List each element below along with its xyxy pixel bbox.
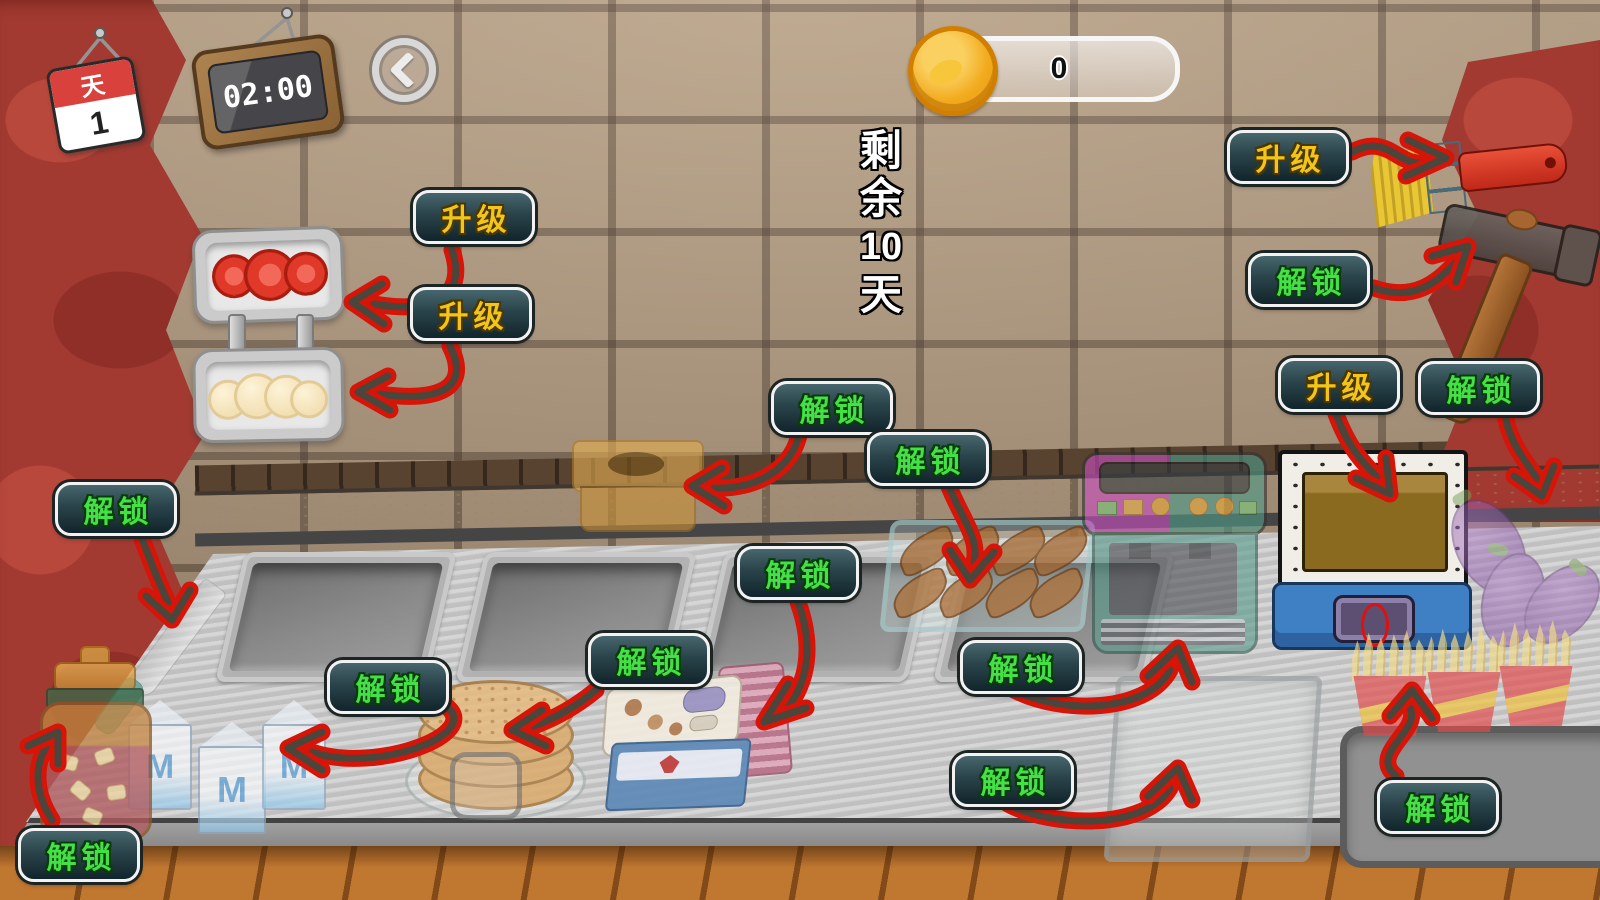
upgrade-tomato-tray-button[interactable]: 升级: [413, 190, 535, 244]
fries-carton: [1426, 626, 1502, 734]
tomato-tray: [191, 225, 345, 324]
unlock-hammer-button[interactable]: 解锁: [1248, 253, 1370, 307]
milk-carton: M: [262, 700, 326, 810]
fries-carton: [1352, 630, 1428, 738]
unlock-chicken-button[interactable]: 解锁: [867, 432, 989, 486]
upgrade-paintbrush-button[interactable]: 升级: [1227, 130, 1349, 184]
unlock-milk-button[interactable]: 解锁: [327, 660, 449, 714]
glass-bin: [1103, 676, 1322, 862]
unlock-fries-button[interactable]: 解锁: [1377, 780, 1499, 834]
milk-logo: M: [280, 748, 308, 787]
back-button[interactable]: [372, 38, 436, 102]
days-remaining-char: 余: [860, 176, 902, 222]
fryer-oil: [1302, 472, 1448, 572]
coin-icon: [908, 26, 998, 116]
fried-chicken-tray: [879, 520, 1096, 632]
unlock-pancakes-button[interactable]: 解锁: [588, 633, 710, 687]
day-calendar: 天 1: [45, 55, 147, 155]
fries-carton: [1498, 620, 1574, 728]
timer-value: 02:00: [207, 49, 330, 134]
days-remaining-number: 10: [860, 224, 902, 270]
game-screen: M M M: [0, 0, 1600, 900]
butter-box: [572, 440, 704, 532]
unlock-eggplant-button[interactable]: 解锁: [1418, 361, 1540, 415]
days-remaining-char: 天: [860, 272, 902, 318]
unlock-glass-bin-button[interactable]: 解锁: [952, 753, 1074, 807]
milk-logo: M: [217, 769, 247, 811]
days-remaining-char: 剩: [860, 128, 902, 174]
unlock-steamer-box-button[interactable]: 解锁: [737, 546, 859, 600]
sauce-jar: [36, 646, 152, 838]
upgrade-fryer-button[interactable]: 升级: [1278, 358, 1400, 412]
coffee-machine: [1082, 452, 1267, 650]
upgrade-bun-tray-button[interactable]: 升级: [410, 287, 532, 341]
milk-carton: M: [198, 722, 266, 834]
coin-count: 0: [1051, 52, 1068, 86]
fryer: [1272, 442, 1470, 650]
back-chevron-icon: [390, 52, 427, 89]
unlock-coffee-machine-button[interactable]: 解锁: [960, 640, 1082, 694]
unlock-butter-box-button[interactable]: 解锁: [771, 381, 893, 435]
bun-tray: [192, 347, 345, 444]
unlock-knife-button[interactable]: 解锁: [55, 482, 177, 536]
timer-clock: 02:00: [190, 32, 347, 151]
days-remaining: 剩 余 10 天: [846, 128, 916, 318]
unlock-sauce-jar-button[interactable]: 解锁: [18, 828, 140, 882]
